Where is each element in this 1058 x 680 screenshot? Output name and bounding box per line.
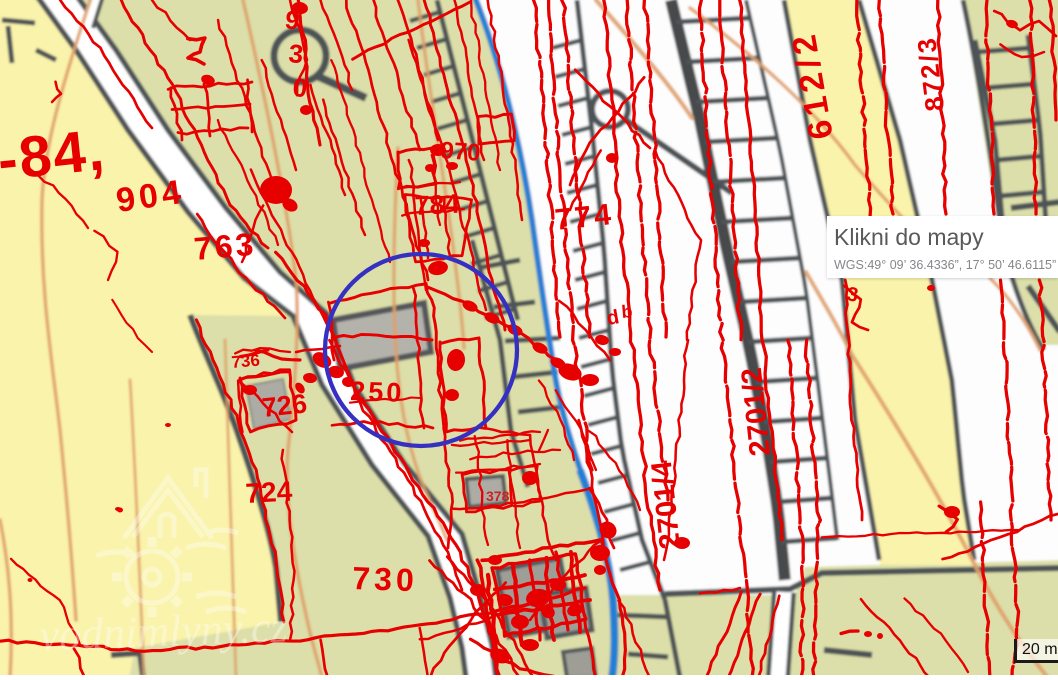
svg-text:774: 774	[553, 198, 615, 237]
svg-text:vodnimlyny.cz: vodnimlyny.cz	[39, 602, 289, 660]
svg-text:250: 250	[350, 376, 405, 408]
svg-text:-84,: -84,	[0, 117, 109, 193]
svg-text:763: 763	[192, 226, 257, 267]
svg-text:378: 378	[486, 488, 510, 504]
svg-text:726: 726	[260, 388, 308, 423]
svg-text:3: 3	[287, 38, 304, 69]
svg-text:b: b	[621, 301, 634, 322]
svg-text:970: 970	[440, 137, 482, 167]
svg-text:730: 730	[352, 560, 419, 598]
